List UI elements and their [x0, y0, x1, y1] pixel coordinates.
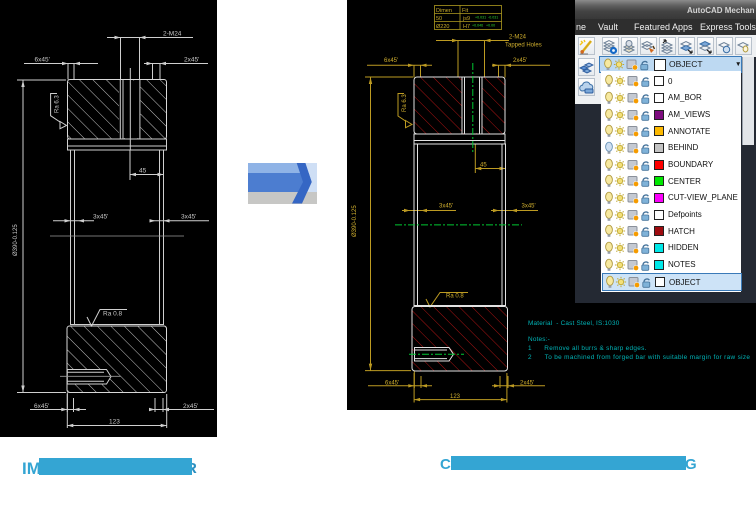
svg-text:6x45': 6x45' [385, 381, 399, 387]
svg-text:Ø220: Ø220 [436, 24, 449, 30]
svg-text:+0.046: +0.046 [472, 24, 483, 28]
svg-text:+0.031: +0.031 [475, 16, 486, 20]
svg-text:Ø390-0.125: Ø390-0.125 [13, 224, 19, 256]
svg-text:2x45': 2x45' [183, 403, 198, 410]
svg-text:Ra 0.8: Ra 0.8 [446, 294, 464, 300]
svg-text:3x45': 3x45' [93, 214, 108, 221]
svg-text:js9: js9 [462, 16, 470, 22]
svg-text:2x45': 2x45' [520, 381, 534, 387]
svg-text:6x45': 6x45' [384, 58, 398, 64]
svg-text:Tapped Holes: Tapped Holes [505, 43, 542, 49]
svg-text:Ra 0.8: Ra 0.8 [103, 311, 123, 318]
svg-text:2x45': 2x45' [184, 57, 199, 64]
svg-text:-0.031: -0.031 [488, 16, 498, 20]
svg-text:Ø390-0.125: Ø390-0.125 [352, 205, 358, 237]
svg-text:3x45': 3x45' [439, 204, 453, 210]
svg-text:+0.00: +0.00 [486, 24, 495, 28]
svg-text:123: 123 [109, 419, 120, 426]
svg-text:Ra 6.3: Ra 6.3 [55, 95, 61, 113]
svg-text:50: 50 [436, 16, 442, 22]
svg-text:Dimen: Dimen [436, 8, 452, 14]
svg-text:45: 45 [139, 168, 147, 175]
svg-text:123: 123 [450, 394, 461, 400]
svg-text:6x45': 6x45' [34, 403, 49, 410]
svg-text:Ra 6.3: Ra 6.3 [402, 94, 408, 112]
svg-text:2x45': 2x45' [513, 58, 527, 64]
svg-text:2-M24: 2-M24 [163, 31, 182, 38]
svg-text:H7: H7 [463, 24, 470, 30]
svg-text:Fit: Fit [462, 8, 469, 14]
svg-text:2-M24: 2-M24 [509, 35, 527, 41]
svg-text:3x45': 3x45' [181, 214, 196, 221]
svg-text:45: 45 [480, 163, 487, 169]
svg-text:6x45': 6x45' [35, 57, 50, 64]
svg-text:3x45': 3x45' [522, 204, 536, 210]
